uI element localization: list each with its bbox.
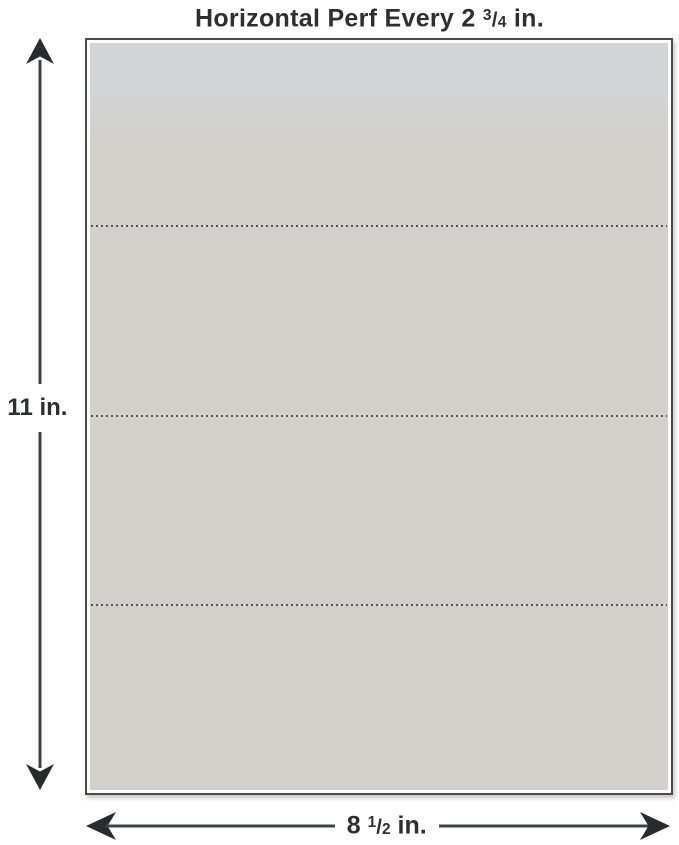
title-text: Horizontal Perf Every 2 — [195, 5, 483, 33]
height-dimension-arrow: 11 in. — [26, 38, 54, 790]
arrow-right-icon — [640, 812, 670, 840]
perforation-line — [91, 415, 667, 417]
width-label-text: 8 — [347, 812, 368, 840]
perforation-line — [91, 225, 667, 227]
title-fraction-numerator: 3 — [483, 7, 492, 24]
width-dimension-arrow: 8 1/2 in. — [86, 812, 670, 840]
perforation-line — [91, 604, 667, 606]
paper-sheet — [85, 38, 673, 795]
width-label: 8 1/2 in. — [335, 812, 439, 841]
diagram-canvas: Horizontal Perf Every 2 3/4 in. 11 in. 8… — [0, 0, 679, 845]
title-suffix: in. — [507, 5, 544, 33]
diagram-title: Horizontal Perf Every 2 3/4 in. — [60, 0, 679, 34]
height-label: 11 in. — [5, 384, 69, 432]
width-label-suffix: in. — [391, 812, 427, 840]
width-fraction-denominator: 2 — [382, 821, 391, 838]
arrow-down-icon — [26, 764, 54, 790]
title-fraction-denominator: 4 — [498, 14, 507, 31]
